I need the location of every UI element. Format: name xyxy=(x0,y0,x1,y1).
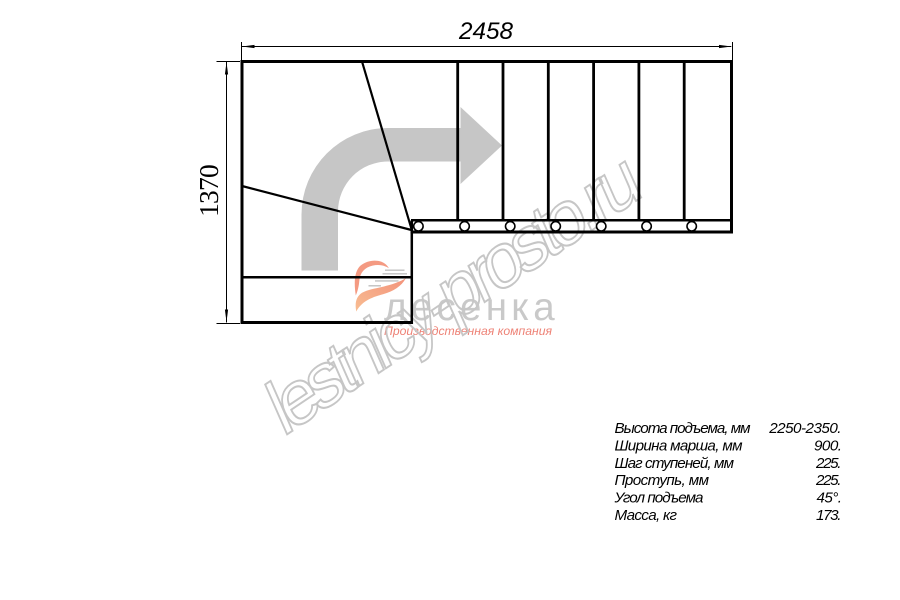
svg-text:1370: 1370 xyxy=(193,165,224,217)
svg-text:2250-2350.: 2250-2350. xyxy=(768,420,841,437)
svg-text:45°.: 45°. xyxy=(817,490,843,507)
svg-text:225.: 225. xyxy=(815,472,842,489)
svg-text:2458: 2458 xyxy=(458,18,514,45)
svg-text:Масса, кг: Масса, кг xyxy=(615,507,678,524)
svg-text:Ширина марша, мм: Ширина марша, мм xyxy=(615,437,744,454)
svg-text:Шаг ступеней, мм: Шаг ступеней, мм xyxy=(615,455,735,472)
svg-text:173.: 173. xyxy=(816,507,842,524)
svg-text:Угол подъема: Угол подъема xyxy=(614,490,704,507)
svg-text:900.: 900. xyxy=(814,437,842,454)
svg-text:Проступь, мм: Проступь, мм xyxy=(615,472,710,489)
svg-text:225.: 225. xyxy=(815,455,842,472)
svg-text:Высота подъема, мм: Высота подъема, мм xyxy=(615,420,752,437)
